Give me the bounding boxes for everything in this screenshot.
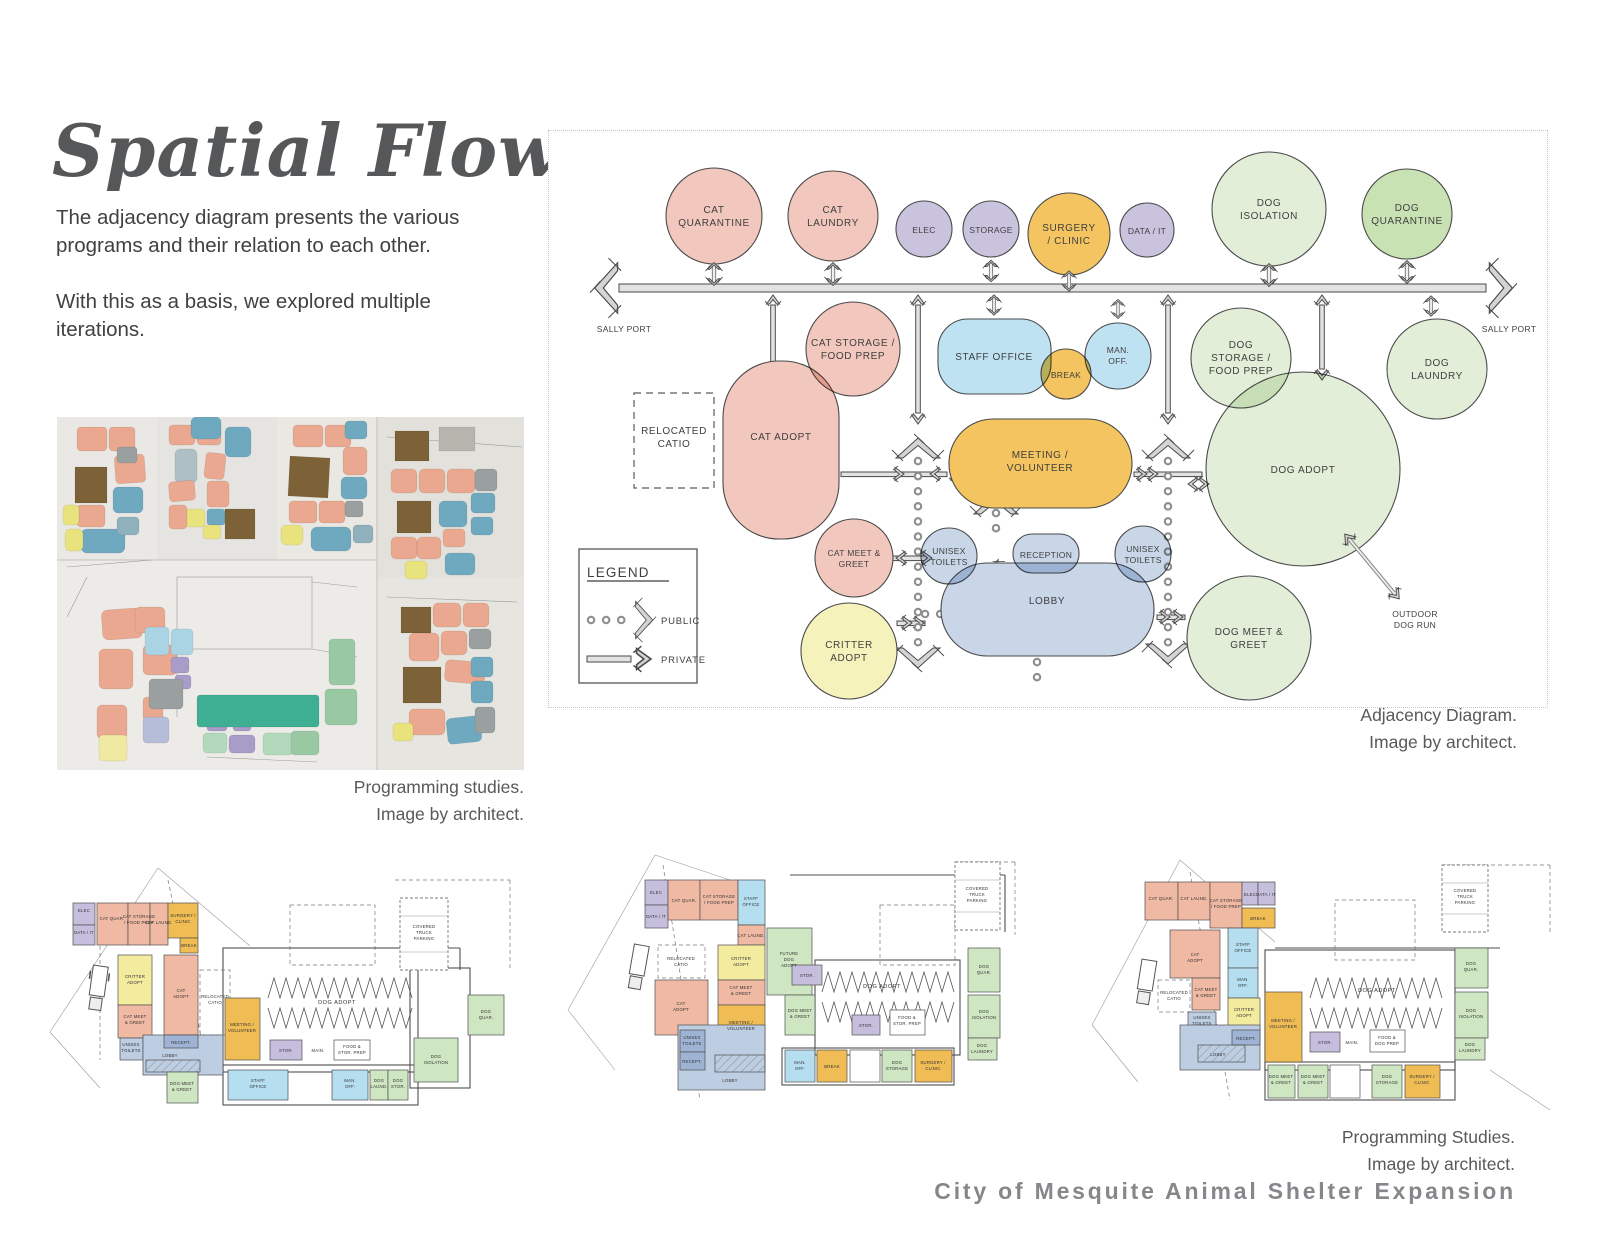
svg-text:TOILETS: TOILETS [121, 1048, 140, 1053]
svg-text:DOG: DOG [1229, 340, 1254, 351]
svg-text:DOG: DOG [1466, 961, 1477, 966]
bubble-unisex-toilets-left: UNISEX TOILETS [921, 528, 977, 584]
bubble-elec: ELEC [896, 201, 952, 257]
svg-text:& GREET: & GREET [1196, 993, 1216, 998]
svg-text:MAIN.: MAIN. [1346, 1040, 1359, 1045]
outdoor-dog-run: OUTDOOR DOG RUN [1339, 529, 1438, 630]
svg-text:STORAGE: STORAGE [1376, 1080, 1398, 1085]
svg-text:DOG MEET: DOG MEET [1301, 1074, 1326, 1079]
svg-text:ELEC: ELEC [650, 890, 662, 895]
bubble-surgery-clinic: SURGERY / CLINIC [1028, 193, 1110, 291]
svg-text:CAT STORAGE: CAT STORAGE [1210, 898, 1243, 903]
svg-text:CAT LAUND.: CAT LAUND. [145, 920, 172, 925]
svg-text:VOLUNTEER: VOLUNTEER [1269, 1024, 1297, 1029]
svg-text:ADOPT: ADOPT [173, 994, 189, 999]
svg-text:TOILETS: TOILETS [1192, 1021, 1211, 1026]
bubble-staff-office: STAFF OFFICE [938, 295, 1051, 394]
svg-text:SURGERY: SURGERY [1042, 223, 1095, 234]
svg-text:DOG: DOG [1425, 358, 1450, 369]
svg-text:/ FOOD PREP: / FOOD PREP [704, 900, 734, 905]
svg-text:CAT MEET: CAT MEET [730, 985, 753, 990]
svg-text:CAT STORAGE: CAT STORAGE [123, 914, 156, 919]
bubble-meeting-volunteer: MEETING / VOLUNTEER [949, 419, 1132, 508]
svg-text:CAT QUAR.: CAT QUAR. [1149, 896, 1174, 901]
svg-text:DOG RUN: DOG RUN [1394, 620, 1436, 630]
svg-text:BREAK: BREAK [1250, 916, 1266, 921]
svg-text:OUTDOOR: OUTDOOR [1392, 609, 1438, 619]
svg-text:CLINIC: CLINIC [175, 919, 190, 924]
svg-text:CATIO: CATIO [658, 439, 691, 450]
svg-text:DOG: DOG [979, 964, 990, 969]
bubble-lobby: LOBBY [941, 563, 1154, 656]
legend-title: LEGEND [587, 565, 650, 580]
legend: LEGEND PUBLIC PRIVATE [579, 549, 706, 683]
svg-text:DOG: DOG [1466, 1008, 1477, 1013]
svg-text:STORAGE: STORAGE [969, 225, 1013, 235]
svg-text:QUAR.: QUAR. [977, 970, 992, 975]
svg-text:CLINIC: CLINIC [925, 1066, 940, 1071]
svg-text:RELOCATED: RELOCATED [201, 994, 229, 999]
svg-text:CATIO: CATIO [1167, 996, 1181, 1001]
svg-text:CAT MEET: CAT MEET [1195, 987, 1218, 992]
svg-text:STOR. PREP: STOR. PREP [893, 1021, 921, 1026]
svg-text:TRUCK: TRUCK [416, 930, 432, 935]
plans-caption-line2: Image by architect. [1015, 1151, 1515, 1178]
plan-building [73, 898, 504, 1105]
svg-text:ADOPT: ADOPT [830, 653, 867, 664]
truck-icon [85, 965, 110, 1011]
svg-text:CAT: CAT [703, 205, 724, 216]
svg-text:ISOLATION: ISOLATION [424, 1060, 448, 1065]
svg-text:BREAK: BREAK [181, 943, 197, 948]
svg-text:DOG MEET: DOG MEET [788, 1008, 813, 1013]
svg-text:MAN.: MAN. [794, 1060, 806, 1065]
svg-text:ELEC: ELEC [78, 908, 90, 913]
svg-text:BREAK: BREAK [824, 1064, 840, 1069]
svg-text:DATA / IT: DATA / IT [646, 914, 666, 919]
svg-text:STAFF OFFICE: STAFF OFFICE [955, 352, 1033, 363]
svg-text:DOG: DOG [374, 1078, 385, 1083]
svg-text:CAT: CAT [822, 205, 843, 216]
bubble-cat-storage-food-prep: CAT STORAGE / FOOD PREP [806, 302, 900, 396]
intro-paragraph-2: With this as a basis, we explored multip… [56, 288, 516, 345]
bubble-dog-isolation: DOG ISOLATION [1212, 152, 1326, 286]
svg-text:OFF.: OFF. [795, 1066, 805, 1071]
svg-text:DOG: DOG [431, 1054, 442, 1059]
svg-text:CRITTER: CRITTER [125, 974, 145, 979]
svg-text:ADOPT: ADOPT [781, 963, 797, 968]
svg-text:FUTURE: FUTURE [780, 951, 799, 956]
svg-text:QUAR.: QUAR. [479, 1015, 494, 1020]
svg-text:RELOCATED: RELOCATED [641, 426, 707, 437]
bubble-dog-quarantine: DOG QUARANTINE [1362, 169, 1452, 283]
svg-text:/ CLINIC: / CLINIC [1047, 236, 1090, 247]
bubble-data-it: DATA / IT [1120, 203, 1174, 257]
floor-plan-2: ELEC DATA / IT CAT QUAR. CAT STORAGE / F… [560, 820, 1040, 1115]
svg-text:UNISEX: UNISEX [683, 1035, 700, 1040]
svg-text:MAN.: MAN. [344, 1078, 356, 1083]
svg-text:LOBBY: LOBBY [162, 1053, 177, 1058]
adjacency-caption: Adjacency Diagram. Image by architect. [1117, 702, 1517, 756]
svg-text:QUARANTINE: QUARANTINE [678, 218, 750, 229]
svg-text:ISOLATION: ISOLATION [972, 1015, 996, 1020]
floor-plan-3: CAT QUAR. CAT LAUND. CAT STORAGE / FOOD … [1080, 820, 1560, 1115]
svg-text:FOOD &: FOOD & [343, 1044, 361, 1049]
bubble-reception: RECEPTION [1013, 534, 1079, 573]
bubble-unisex-toilets-right: UNISEX TOILETS [1115, 526, 1171, 582]
svg-text:FOOD PREP: FOOD PREP [1209, 366, 1273, 377]
svg-text:UNISEX: UNISEX [122, 1042, 139, 1047]
bubble-dog-laundry: DOG LAUNDRY [1387, 296, 1487, 419]
svg-text:DOG ADOPT: DOG ADOPT [1271, 465, 1336, 476]
svg-text:ADOPT: ADOPT [1236, 1013, 1252, 1018]
svg-text:CAT QUAR.: CAT QUAR. [672, 898, 697, 903]
svg-text:DOG ADOPT: DOG ADOPT [1358, 988, 1396, 994]
svg-text:MEETING /: MEETING / [1271, 1018, 1295, 1023]
svg-text:STOR.: STOR. [859, 1023, 873, 1028]
svg-text:FOOD &: FOOD & [898, 1015, 916, 1020]
svg-text:PARKING: PARKING [967, 898, 988, 903]
svg-text:STOR.: STOR. [1318, 1040, 1332, 1045]
svg-text:ISOLATION: ISOLATION [1459, 1014, 1483, 1019]
svg-text:COVERED: COVERED [966, 886, 989, 891]
svg-text:DOG ADOPT: DOG ADOPT [318, 1000, 356, 1006]
svg-text:RECEPT.: RECEPT. [1236, 1036, 1256, 1041]
svg-text:CAT QUAR.: CAT QUAR. [100, 916, 125, 921]
svg-text:LOBBY: LOBBY [722, 1078, 737, 1083]
bubble-storage: STORAGE [963, 201, 1019, 282]
adjacency-caption-line2: Image by architect. [1117, 729, 1517, 756]
svg-text:UNISEX: UNISEX [1126, 544, 1159, 554]
bubble-cat-quarantine: CAT QUARANTINE [666, 168, 762, 285]
svg-text:CAT STORAGE /: CAT STORAGE / [811, 338, 895, 349]
svg-text:LAUNDRY: LAUNDRY [971, 1049, 993, 1054]
sally-port-left-label: SALLY PORT [597, 324, 652, 334]
svg-text:COVERED: COVERED [413, 924, 436, 929]
svg-text:DATA / IT: DATA / IT [1256, 892, 1276, 897]
svg-text:TOILETS: TOILETS [1124, 555, 1161, 565]
relocated-catio-box: RELOCATED CATIO [634, 393, 714, 488]
svg-text:ELEC: ELEC [912, 225, 935, 235]
svg-text:ADOPT: ADOPT [733, 962, 749, 967]
svg-text:STOR.: STOR. [279, 1048, 293, 1053]
svg-text:STAFF: STAFF [251, 1078, 265, 1083]
svg-text:DOG: DOG [979, 1009, 990, 1014]
bubble-break: BREAK [1041, 349, 1091, 399]
svg-text:OFF.: OFF. [1238, 983, 1248, 988]
svg-text:STORAGE /: STORAGE / [1211, 353, 1271, 364]
bubble-dog-adopt: DOG ADOPT [1206, 372, 1400, 566]
svg-text:DOG: DOG [892, 1060, 903, 1065]
svg-text:CAT LAUND.: CAT LAUND. [737, 933, 764, 938]
svg-text:DOG MEET &: DOG MEET & [1215, 627, 1284, 638]
svg-text:BREAK: BREAK [1051, 370, 1081, 380]
svg-text:STOR.: STOR. [391, 1084, 405, 1089]
svg-text:MAN.: MAN. [1107, 345, 1129, 355]
bubble-cat-adopt: CAT ADOPT [723, 361, 839, 539]
bubble-cat-laundry: CAT LAUNDRY [788, 171, 878, 285]
svg-text:CAT ADOPT: CAT ADOPT [750, 432, 811, 443]
svg-text:TRUCK: TRUCK [1457, 894, 1473, 899]
svg-text:OFFICE: OFFICE [743, 902, 760, 907]
svg-text:DATA / IT: DATA / IT [1128, 226, 1166, 236]
svg-text:CAT MEET: CAT MEET [124, 1014, 147, 1019]
bubble-dog-meet-greet: DOG MEET & GREET [1187, 576, 1311, 700]
svg-text:DOG: DOG [1395, 203, 1420, 214]
svg-text:OFF.: OFF. [345, 1084, 355, 1089]
svg-text:STOR.: STOR. [800, 973, 814, 978]
svg-text:& GREET: & GREET [172, 1087, 192, 1092]
page-title: Spatial Flow [52, 108, 561, 193]
svg-text:STAFF: STAFF [1236, 942, 1250, 947]
svg-text:CAT: CAT [177, 988, 186, 993]
bubble-manager-office: MAN. OFF. [1085, 299, 1151, 389]
svg-text:PARKING: PARKING [1455, 900, 1476, 905]
svg-text:QUARANTINE: QUARANTINE [1371, 216, 1443, 227]
svg-text:STORAGE: STORAGE [886, 1066, 908, 1071]
plans-caption: Programming Studies. Image by architect. [1015, 1124, 1515, 1178]
svg-text:OFFICE: OFFICE [250, 1084, 267, 1089]
svg-text:CAT: CAT [677, 1001, 686, 1006]
floor-plan-1: ELEC DATA / IT CAT QUAR. CAT STORAGE / F… [40, 820, 520, 1115]
svg-text:MEETING /: MEETING / [729, 1020, 753, 1025]
svg-text:TOILETS: TOILETS [930, 557, 967, 567]
svg-text:SURGERY /: SURGERY / [170, 913, 196, 918]
svg-text:ADOPT: ADOPT [127, 980, 143, 985]
svg-text:DOG: DOG [1465, 1042, 1476, 1047]
svg-text:OFF.: OFF. [1108, 356, 1128, 366]
svg-text:ADOPT: ADOPT [1187, 958, 1203, 963]
svg-text:RECEPTION: RECEPTION [1020, 550, 1072, 560]
svg-text:DOG: DOG [784, 957, 795, 962]
svg-text:MAN.: MAN. [1237, 977, 1249, 982]
intro-paragraph-1: The adjacency diagram presents the vario… [56, 204, 516, 261]
svg-text:DOG PREP: DOG PREP [1375, 1041, 1399, 1046]
svg-text:DOG: DOG [977, 1043, 988, 1048]
svg-text:FOOD &: FOOD & [1378, 1035, 1396, 1040]
svg-text:MEETING /: MEETING / [230, 1022, 254, 1027]
svg-text:PARKING: PARKING [414, 936, 435, 941]
svg-text:VOLUNTEER: VOLUNTEER [228, 1028, 256, 1033]
svg-text:DOG ADOPT: DOG ADOPT [863, 984, 901, 990]
svg-text:QUAR.: QUAR. [1464, 967, 1479, 972]
svg-text:RECEPT.: RECEPT. [682, 1059, 702, 1064]
svg-text:LOBBY: LOBBY [1029, 596, 1065, 607]
project-title: City of Mesquite Animal Shelter Expansio… [934, 1178, 1516, 1205]
svg-text:RELOCATED: RELOCATED [1160, 990, 1188, 995]
svg-text:GREET: GREET [1230, 640, 1267, 651]
svg-text:LAUNDRY: LAUNDRY [807, 218, 859, 229]
truck-icon [1135, 959, 1157, 1005]
legend-public-label: PUBLIC [661, 616, 700, 627]
svg-text:DOG: DOG [481, 1009, 492, 1014]
bubble-cat-meet-greet: CAT MEET & GREET [815, 519, 893, 597]
photo-caption-line1: Programming studies. [124, 774, 524, 801]
svg-text:CRITTER: CRITTER [825, 640, 873, 651]
svg-text:ADOPT: ADOPT [673, 1007, 689, 1012]
svg-text:CLINIC: CLINIC [1414, 1080, 1429, 1085]
svg-text:ELEC: ELEC [1244, 892, 1256, 897]
svg-text:TRUCK: TRUCK [969, 892, 985, 897]
svg-text:MAIN.: MAIN. [312, 1048, 325, 1053]
svg-text:MEETING /: MEETING / [1012, 450, 1069, 461]
adjacency-diagram: SALLY PORT SALLY PORT [548, 130, 1548, 708]
plans-caption-line1: Programming Studies. [1015, 1124, 1515, 1151]
svg-text:& GREET: & GREET [1271, 1080, 1291, 1085]
svg-text:LAUNDRY: LAUNDRY [1459, 1048, 1481, 1053]
svg-text:ISOLATION: ISOLATION [1240, 211, 1298, 222]
svg-text:CRITTER: CRITTER [731, 956, 751, 961]
svg-text:RECEPT.: RECEPT. [171, 1040, 191, 1045]
svg-text:FOOD PREP: FOOD PREP [821, 351, 885, 362]
svg-text:STAFF: STAFF [744, 896, 758, 901]
svg-text:DATA / IT: DATA / IT [74, 930, 94, 935]
svg-text:STOR. PREP: STOR. PREP [338, 1050, 366, 1055]
svg-text:TOILETS: TOILETS [682, 1041, 701, 1046]
svg-text:CATIO: CATIO [208, 1000, 222, 1005]
photo-collage [57, 417, 524, 770]
svg-text:GREET: GREET [839, 559, 870, 569]
svg-text:CAT MEET &: CAT MEET & [827, 548, 880, 558]
bubble-critter-adopt: CRITTER ADOPT [801, 603, 897, 699]
svg-text:DOG: DOG [393, 1078, 404, 1083]
adjacency-caption-line1: Adjacency Diagram. [1117, 702, 1517, 729]
svg-text:LAUND.: LAUND. [371, 1084, 388, 1089]
svg-text:& GREET: & GREET [1303, 1080, 1323, 1085]
svg-text:DOG MEET: DOG MEET [1269, 1074, 1294, 1079]
truck-icon [627, 944, 649, 990]
svg-text:CAT: CAT [1191, 952, 1200, 957]
svg-text:LOBBY: LOBBY [1210, 1052, 1225, 1057]
svg-text:CAT LAUND.: CAT LAUND. [1180, 896, 1207, 901]
svg-text:CATIO: CATIO [674, 962, 688, 967]
svg-text:VOLUNTEER: VOLUNTEER [727, 1026, 755, 1031]
svg-text:CRITTER: CRITTER [1234, 1007, 1254, 1012]
svg-text:UNISEX: UNISEX [932, 546, 965, 556]
svg-text:/ FOOD PREP: / FOOD PREP [1211, 904, 1241, 909]
programming-studies-photo [57, 417, 524, 770]
svg-text:UNISEX: UNISEX [1193, 1015, 1210, 1020]
svg-text:COVERED: COVERED [1454, 888, 1477, 893]
svg-text:& GREET: & GREET [790, 1014, 810, 1019]
svg-text:DOG: DOG [1257, 198, 1282, 209]
svg-text:RELOCATED: RELOCATED [667, 956, 695, 961]
svg-text:SURGERY /: SURGERY / [920, 1060, 946, 1065]
legend-private-label: PRIVATE [661, 655, 706, 666]
svg-text:& GREET: & GREET [125, 1020, 145, 1025]
svg-text:SURGERY /: SURGERY / [1409, 1074, 1435, 1079]
svg-text:DOG MEET: DOG MEET [170, 1081, 195, 1086]
sally-port-right-label: SALLY PORT [1482, 324, 1537, 334]
svg-text:& GREET: & GREET [731, 991, 751, 996]
svg-text:VOLUNTEER: VOLUNTEER [1007, 463, 1074, 474]
svg-text:CAT STORAGE: CAT STORAGE [703, 894, 736, 899]
svg-text:LAUNDRY: LAUNDRY [1411, 371, 1463, 382]
svg-text:DOG: DOG [1382, 1074, 1393, 1079]
svg-text:OFFICE: OFFICE [1235, 948, 1252, 953]
